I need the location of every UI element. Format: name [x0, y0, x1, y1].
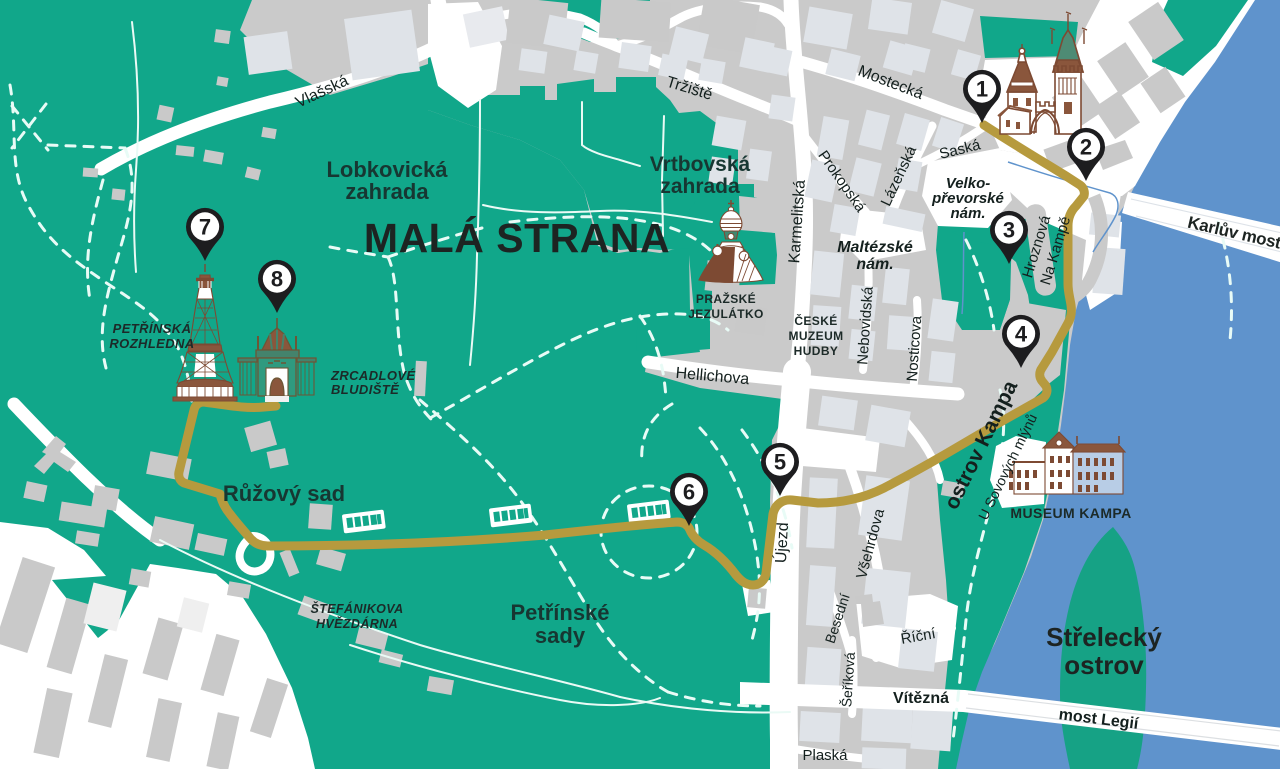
svg-text:ostrov: ostrov [1064, 650, 1144, 680]
svg-text:1: 1 [976, 77, 988, 102]
svg-text:ČESKÉ: ČESKÉ [794, 313, 837, 328]
svg-text:Plaská: Plaská [802, 747, 848, 764]
svg-text:7: 7 [199, 215, 211, 240]
svg-text:ZRCADLOVÉ: ZRCADLOVÉ [330, 368, 416, 383]
svg-text:zahrada: zahrada [345, 179, 429, 204]
svg-text:MALÁ STRANA: MALÁ STRANA [364, 215, 670, 261]
svg-text:PRAŽSKÉ: PRAŽSKÉ [696, 291, 756, 306]
svg-text:HVĚZDÁRNA: HVĚZDÁRNA [316, 616, 398, 631]
svg-text:MUZEUM: MUZEUM [788, 329, 843, 343]
svg-text:5: 5 [774, 450, 786, 475]
svg-text:sady: sady [535, 623, 586, 648]
svg-text:MUSEUM KAMPA: MUSEUM KAMPA [1010, 505, 1131, 521]
svg-text:2: 2 [1080, 135, 1092, 160]
svg-text:BLUDIŠTĚ: BLUDIŠTĚ [331, 382, 399, 397]
svg-text:zahrada: zahrada [660, 175, 740, 198]
svg-text:Růžový sad: Růžový sad [223, 481, 345, 506]
svg-text:Újezd: Újezd [771, 522, 792, 564]
svg-text:Maltézské: Maltézské [837, 239, 913, 256]
svg-text:ŠTEFÁNIKOVA: ŠTEFÁNIKOVA [310, 601, 403, 616]
svg-text:PETŘÍNSKÁ: PETŘÍNSKÁ [113, 321, 192, 336]
svg-text:Střelecký: Střelecký [1046, 622, 1162, 652]
svg-text:nám.: nám. [856, 256, 893, 273]
svg-text:nám.: nám. [950, 205, 985, 222]
svg-text:JEZULÁTKO: JEZULÁTKO [688, 306, 764, 321]
svg-text:HUDBY: HUDBY [794, 344, 839, 358]
svg-text:Petřínské: Petřínské [510, 600, 609, 625]
svg-text:ROZHLEDNA: ROZHLEDNA [109, 336, 194, 351]
svg-text:6: 6 [683, 480, 695, 505]
svg-text:3: 3 [1003, 218, 1015, 243]
svg-text:Vrtbovská: Vrtbovská [650, 153, 751, 176]
svg-text:4: 4 [1015, 322, 1028, 347]
svg-text:Vítězná: Vítězná [893, 690, 949, 707]
svg-text:8: 8 [271, 267, 283, 292]
